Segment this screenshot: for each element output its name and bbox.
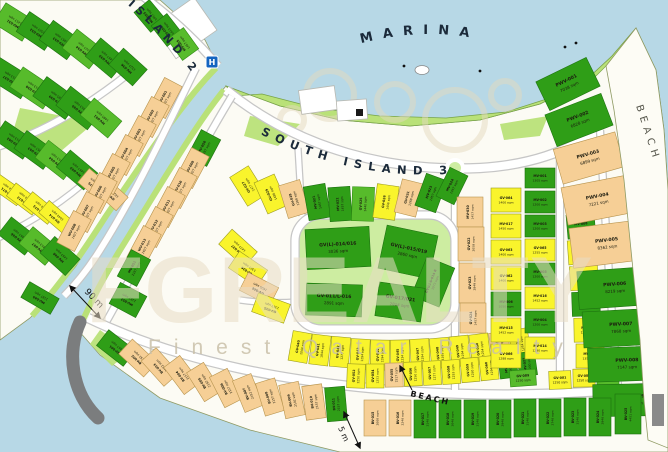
svg-text:MV-004: MV-004 xyxy=(533,318,547,322)
svg-text:BV-025: BV-025 xyxy=(624,408,628,421)
plot-GV-023: GV-0232849 sqm xyxy=(459,263,485,303)
plot-label: GV-0241457 sqm xyxy=(469,310,478,325)
svg-text:1250 sqm: 1250 sqm xyxy=(356,368,361,383)
svg-text:GV-011/L-016: GV-011/L-016 xyxy=(317,293,352,300)
svg-text:MV-001: MV-001 xyxy=(533,174,546,178)
svg-text:1200 sqm: 1200 sqm xyxy=(533,274,548,278)
plot-label: BV-0233146 sqm xyxy=(571,409,580,424)
svg-text:2246 sqm: 2246 sqm xyxy=(400,410,404,425)
svg-text:2946 sqm: 2946 sqm xyxy=(600,409,604,424)
plot-GV-089: GV-0891250 sqm xyxy=(509,369,536,387)
plot-MV-001: MV-0011305 sqm xyxy=(525,168,555,188)
plot-label: BV-0222746 sqm xyxy=(546,410,555,425)
hospital-letter: H xyxy=(209,58,216,67)
plot-label: GV-0581253 sqm xyxy=(446,364,456,380)
svg-text:MV-016: MV-016 xyxy=(533,294,547,298)
svg-text:BV-020: BV-020 xyxy=(496,412,500,425)
svg-text:BV-021: BV-021 xyxy=(521,412,525,425)
plot-BV-011: BV-0112157 sqm xyxy=(325,386,348,422)
plot-label: GV-0541253 sqm xyxy=(371,368,380,383)
svg-text:1200 sqm: 1200 sqm xyxy=(533,226,548,230)
plot-label: GV-0451234 sqm xyxy=(396,347,405,362)
svg-text:MV-030: MV-030 xyxy=(466,205,470,219)
plot-label: BV-0112157 sqm xyxy=(331,396,341,412)
svg-text:2000 sqm: 2000 sqm xyxy=(375,410,379,425)
plot-label: GV-0232849 sqm xyxy=(468,275,477,290)
plot-BV-019: BV-0193146 sqm xyxy=(464,400,486,438)
svg-text:GV-055: GV-055 xyxy=(390,369,394,382)
svg-text:MV-015: MV-015 xyxy=(499,326,512,330)
plot-label: GV-0521250 sqm xyxy=(352,368,361,383)
svg-text:7868 sqm: 7868 sqm xyxy=(611,328,631,334)
plot-map: MV-0311457 sqmMV-0321527 sqmMV-0331457 s… xyxy=(0,0,668,452)
plot-label: GV-0222058 sqm xyxy=(467,236,476,251)
svg-text:3146 sqm: 3146 sqm xyxy=(425,411,429,426)
svg-text:1452 sqm: 1452 sqm xyxy=(499,330,514,334)
plot-MV-002: MV-0021200 sqm xyxy=(525,191,555,213)
svg-text:2891 sqm: 2891 sqm xyxy=(324,300,344,306)
plot-label: GV-0481193 sqm xyxy=(435,345,445,361)
plot-label: BV-0242946 sqm xyxy=(596,409,605,424)
plot-GV-081: GV-0811250 sqm xyxy=(549,371,572,390)
svg-text:MV-006: MV-006 xyxy=(499,300,513,304)
svg-text:MV-002: MV-002 xyxy=(533,198,546,202)
plot-MV-005: MV-0051200 sqm xyxy=(525,263,555,285)
plot-label: MV-0021200 sqm xyxy=(533,198,548,207)
plot-label: GV-0571277 sqm xyxy=(427,365,436,380)
svg-text:BV-015: BV-015 xyxy=(371,412,375,425)
svg-text:MV-017: MV-017 xyxy=(499,222,512,226)
svg-text:MV-014: MV-014 xyxy=(533,344,547,348)
plot-label: GV-0411044 sqm xyxy=(315,342,325,358)
plot-BV-010: BV-0102157 sqm xyxy=(302,384,327,420)
plot-GV-057: GV-0571277 sqm xyxy=(422,361,441,386)
plot-GV-063: GV-0631400 sqm xyxy=(491,240,521,264)
plot-label: GV-0631400 sqm xyxy=(499,248,514,257)
plot-BV-024: BV-0242946 sqm xyxy=(589,398,611,436)
svg-text:1294 sqm: 1294 sqm xyxy=(380,347,384,362)
plot-label: GV-0441294 sqm xyxy=(376,347,385,362)
plot-BV-016: BV-0162246 sqm xyxy=(389,400,411,436)
svg-text:1452 sqm: 1452 sqm xyxy=(533,298,548,302)
svg-text:1450 sqm: 1450 sqm xyxy=(499,226,514,230)
svg-text:1440 sqm: 1440 sqm xyxy=(363,196,368,211)
svg-text:2746 sqm: 2746 sqm xyxy=(550,410,554,425)
plot-label: MV-0011305 sqm xyxy=(533,174,548,183)
plot-label: MV-0171450 sqm xyxy=(499,222,514,231)
svg-text:3146 sqm: 3146 sqm xyxy=(575,409,579,424)
svg-text:BV-019: BV-019 xyxy=(471,412,475,425)
svg-text:GV-045: GV-045 xyxy=(396,349,400,362)
svg-text:BV-023: BV-023 xyxy=(571,411,575,424)
plot-GV-011/L-016: GV-011/L-0162891 sqm xyxy=(305,283,362,317)
plot-label: BV-0183046 sqm xyxy=(446,411,455,426)
svg-text:GV-054: GV-054 xyxy=(371,369,375,383)
svg-text:3146 sqm: 3146 sqm xyxy=(525,410,529,425)
plot-GV-062: GV-0621400 sqm xyxy=(491,266,521,290)
tree-dot xyxy=(403,65,406,68)
plot-label: GV-0641400 sqm xyxy=(499,196,514,205)
svg-text:1250 sqm: 1250 sqm xyxy=(553,380,568,385)
plot-GV-054: GV-0541253 sqm xyxy=(366,364,384,388)
plot-label: BV-0254451 sqm xyxy=(624,406,633,421)
plot-label: MV-0141290 sqm xyxy=(533,344,548,353)
plot-label: BV-0173146 sqm xyxy=(421,411,430,426)
plot-label: MV-0161452 sqm xyxy=(533,294,548,303)
svg-text:2946 sqm: 2946 sqm xyxy=(500,411,504,426)
plot-GV-042: GV-0421277 sqm xyxy=(329,336,351,368)
plot-label: GV-0501254 sqm xyxy=(475,341,485,357)
plot-GV-066: GV-0661288 sqm xyxy=(491,344,521,368)
svg-text:GV-065: GV-065 xyxy=(534,246,547,250)
svg-text:MV-003: MV-003 xyxy=(533,222,546,226)
svg-text:1457 sqm: 1457 sqm xyxy=(473,310,477,325)
plot-label: MV-0151452 sqm xyxy=(499,326,514,335)
plot-label: GV-0591250 sqm xyxy=(465,362,475,378)
svg-text:BV-018: BV-018 xyxy=(446,412,450,425)
plot-label: MV-0031200 sqm xyxy=(533,222,548,231)
svg-text:BV-016: BV-016 xyxy=(396,411,400,424)
tree-dot xyxy=(575,42,578,45)
svg-text:1277 sqm: 1277 sqm xyxy=(432,365,437,380)
plot-MV-030: MV-0301457 sqm xyxy=(457,197,483,227)
pond xyxy=(415,66,429,75)
plot-BV-021: BV-0213146 sqm xyxy=(514,399,536,437)
plot-GV(L)-014/016: GV(L)-014/0163036 sqm xyxy=(305,226,371,269)
svg-text:BV-024: BV-024 xyxy=(596,410,600,423)
svg-text:1400 sqm: 1400 sqm xyxy=(499,200,514,204)
svg-text:PWV-007: PWV-007 xyxy=(609,321,632,328)
svg-text:1517 sqm: 1517 sqm xyxy=(394,367,398,382)
plot-label: GV-0491294 sqm xyxy=(455,343,465,359)
plot-label: GV-0551517 sqm xyxy=(390,367,399,382)
plot-BV-015: BV-0152000 sqm xyxy=(364,400,386,436)
svg-text:1294 sqm: 1294 sqm xyxy=(420,346,425,361)
building xyxy=(299,86,338,115)
svg-text:3036 sqm: 3036 sqm xyxy=(328,248,348,254)
plot-label: GV-0421277 sqm xyxy=(335,344,345,360)
svg-text:4451 sqm: 4451 sqm xyxy=(628,406,632,421)
svg-text:GV-064: GV-064 xyxy=(500,196,514,200)
plot-MV-003: MV-0031200 sqm xyxy=(525,215,555,237)
svg-text:1050 sqm: 1050 sqm xyxy=(499,304,514,308)
plot-MV-015: MV-0151452 sqm xyxy=(491,318,521,342)
plot-GV-059: GV-0591250 sqm xyxy=(460,357,480,382)
plot-label: GV-0431294 sqm xyxy=(355,346,364,361)
plot-label: GV-0251440 sqm xyxy=(359,196,368,211)
mosque-icon xyxy=(356,109,363,116)
svg-text:3146 sqm: 3146 sqm xyxy=(475,411,479,426)
plot-GV-041: GV-0411044 sqm xyxy=(309,334,332,366)
svg-text:PWV-008: PWV-008 xyxy=(615,357,638,364)
pier-stub xyxy=(652,394,664,426)
svg-text:1200 sqm: 1200 sqm xyxy=(533,322,548,326)
plot-GV-024: GV-0241457 sqm xyxy=(460,303,486,333)
plot-label: GV-0651255 sqm xyxy=(533,246,548,255)
plot-GV-025: GV-0251440 sqm xyxy=(351,187,374,222)
svg-text:BV-022: BV-022 xyxy=(546,412,550,425)
plot-GV-022: GV-0222058 sqm xyxy=(458,227,484,261)
svg-text:1400 sqm: 1400 sqm xyxy=(499,278,514,282)
svg-text:1250 sqm: 1250 sqm xyxy=(413,366,418,381)
plot-MV-016: MV-0161452 sqm xyxy=(525,287,555,309)
plot-label: GV-0661288 sqm xyxy=(499,352,514,361)
plot-label: GV-0891250 sqm xyxy=(515,373,531,383)
plot-label: PWV-0077868 sqm xyxy=(609,321,633,334)
svg-text:1290 sqm: 1290 sqm xyxy=(533,348,548,352)
svg-text:BV-017: BV-017 xyxy=(421,413,425,426)
plot-BV-022: BV-0222746 sqm xyxy=(539,399,561,437)
plot-MV-014: MV-0141290 sqm xyxy=(525,337,555,359)
svg-text:GV-063: GV-063 xyxy=(500,248,513,252)
svg-text:GV-024: GV-024 xyxy=(469,311,473,325)
map-canvas: MV-0311457 sqmMV-0321527 sqmMV-0331457 s… xyxy=(0,0,668,452)
svg-text:1294 sqm: 1294 sqm xyxy=(360,346,365,361)
plot-label: MV-0041200 sqm xyxy=(533,318,548,327)
svg-text:1288 sqm: 1288 sqm xyxy=(499,356,514,360)
plot-MV-006: MV-0061050 sqm xyxy=(491,292,521,316)
plot-label: GV-0561250 sqm xyxy=(409,366,418,381)
plot-label: MV-0301457 sqm xyxy=(466,204,475,219)
plot-BV-023: BV-0233146 sqm xyxy=(564,398,586,436)
svg-text:7147 sqm: 7147 sqm xyxy=(617,364,637,370)
plot-GV-017/021: GV-017/0212814 sqm xyxy=(375,282,425,322)
svg-text:1305 sqm: 1305 sqm xyxy=(533,178,548,182)
plot-label: MV-0061050 sqm xyxy=(499,300,514,309)
plot-GV-065: GV-0651255 sqm xyxy=(525,239,555,261)
plot-label: GV-0621400 sqm xyxy=(499,274,514,283)
plot-label: BV-0162246 sqm xyxy=(396,410,405,425)
plot-label: MV-0051200 sqm xyxy=(533,270,548,279)
svg-text:MV-005: MV-005 xyxy=(533,270,546,274)
plot-GV-064: GV-0641400 sqm xyxy=(491,188,521,212)
plot-label: BV-0213146 sqm xyxy=(521,410,530,425)
plot-MV-004: MV-0041200 sqm xyxy=(525,311,555,333)
svg-text:GV-023: GV-023 xyxy=(468,277,472,290)
svg-text:GV-044: GV-044 xyxy=(376,348,380,362)
plot-GV-056: GV-0561250 sqm xyxy=(404,362,423,387)
plot-GV-058: GV-0581253 sqm xyxy=(441,359,461,384)
plot-MV-022: MV-0221457 sqm xyxy=(328,186,352,221)
svg-text:3046 sqm: 3046 sqm xyxy=(450,411,454,426)
plot-label: BV-0152000 sqm xyxy=(371,410,380,425)
svg-text:1255 sqm: 1255 sqm xyxy=(533,250,548,254)
plot-label: BV-0193146 sqm xyxy=(471,411,480,426)
plot-label: GV-0811250 sqm xyxy=(552,376,567,385)
plot-BV-017: BV-0173146 sqm xyxy=(414,400,436,438)
plot-GV-026: GV-0261456 sqm xyxy=(373,184,400,221)
svg-text:1253 sqm: 1253 sqm xyxy=(375,368,379,383)
svg-text:GV-066: GV-066 xyxy=(500,352,514,356)
plot-label: GV-0471294 sqm xyxy=(415,346,424,361)
svg-text:1457 sqm: 1457 sqm xyxy=(470,204,474,219)
tree-dot xyxy=(564,46,567,49)
plot-BV-018: BV-0183046 sqm xyxy=(439,400,461,438)
plot-label: BV-0202946 sqm xyxy=(496,411,505,426)
svg-text:GV-062: GV-062 xyxy=(500,274,513,278)
plot-label: MV-0221457 sqm xyxy=(335,196,345,212)
plot-BV-020: BV-0202946 sqm xyxy=(489,400,511,438)
svg-text:1200 sqm: 1200 sqm xyxy=(533,202,548,206)
svg-text:1234 sqm: 1234 sqm xyxy=(400,347,404,362)
plot-BV-025: BV-0254451 sqm xyxy=(615,394,641,434)
plot-GV-052: GV-0521250 sqm xyxy=(347,364,366,389)
svg-text:2058 sqm: 2058 sqm xyxy=(471,236,475,251)
plot-MV-017: MV-0171450 sqm xyxy=(491,214,521,238)
svg-text:GV-022: GV-022 xyxy=(467,238,471,251)
svg-text:2849 sqm: 2849 sqm xyxy=(472,275,476,290)
tree-dot xyxy=(479,70,482,73)
svg-text:1400 sqm: 1400 sqm xyxy=(499,252,514,256)
